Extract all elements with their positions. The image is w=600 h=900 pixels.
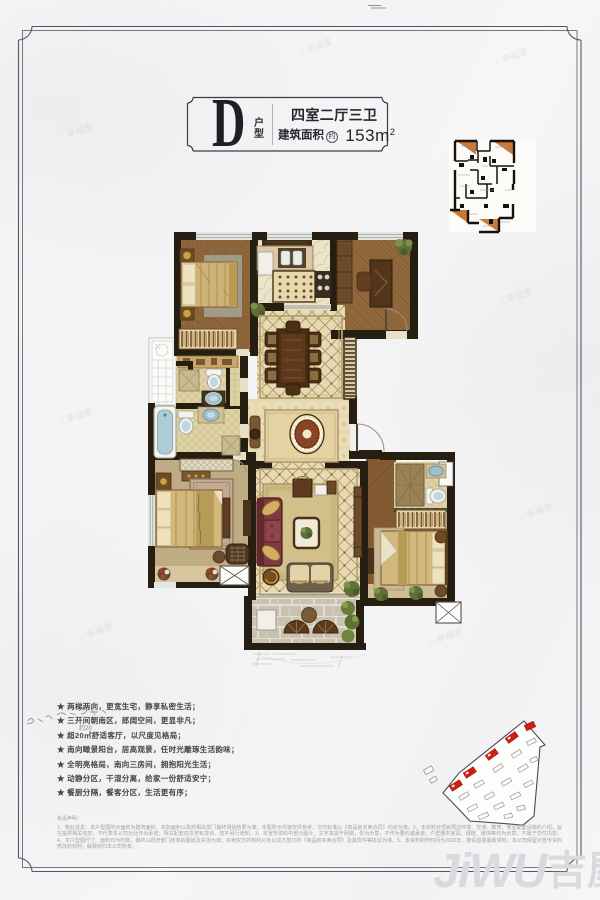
svg-text:⌂ 幸福里: ⌂ 幸福里 — [517, 501, 554, 522]
svg-text:⌂ 幸福里: ⌂ 幸福里 — [77, 621, 114, 642]
svg-text:⌂ 幸福里: ⌂ 幸福里 — [297, 36, 334, 57]
svg-text:⌂ 幸福里: ⌂ 幸福里 — [492, 46, 529, 67]
svg-text:吉屋: 吉屋 — [547, 849, 600, 893]
svg-text:⌂ 幸福里: ⌂ 幸福里 — [57, 121, 94, 142]
svg-text:JiWU: JiWU — [433, 845, 548, 898]
svg-text:⌂ 幸福里: ⌂ 幸福里 — [427, 626, 464, 647]
svg-text:⌂ 幸福里: ⌂ 幸福里 — [57, 406, 94, 427]
svg-text:⌂ 幸福里: ⌂ 幸福里 — [497, 286, 534, 307]
